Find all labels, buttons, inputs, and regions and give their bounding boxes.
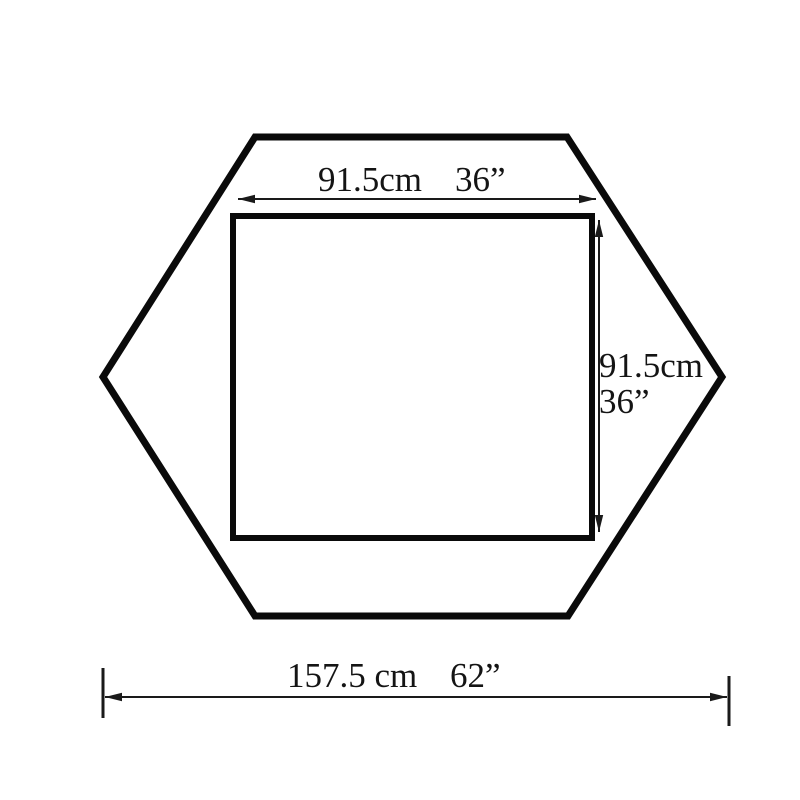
right-height-metric-label: 91.5cm	[599, 346, 703, 385]
diagram-canvas: 91.5cm 36” 91.5cm 36” 157.5 cm 62”	[0, 0, 800, 800]
bottom-width-imperial-label: 62”	[450, 656, 501, 695]
top-width-metric-label: 91.5cm	[318, 160, 422, 199]
bottom-width-metric-label: 157.5 cm	[287, 656, 417, 695]
dimension-diagram: 91.5cm 36” 91.5cm 36” 157.5 cm 62”	[0, 0, 800, 800]
top-width-imperial-label: 36”	[455, 160, 506, 199]
inner-square	[233, 216, 592, 538]
right-height-imperial-label: 36”	[599, 382, 650, 421]
